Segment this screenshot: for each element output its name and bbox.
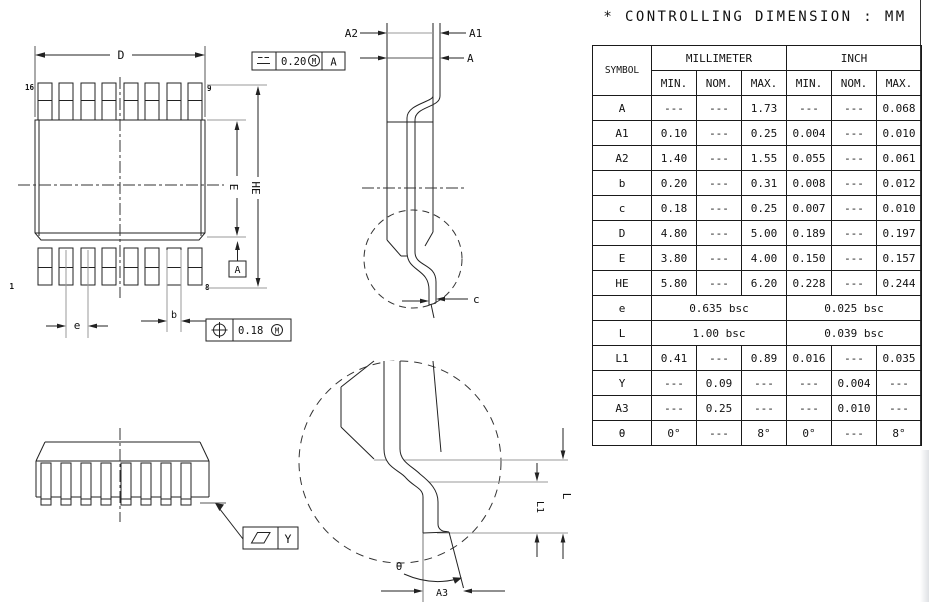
table-row: e0.635 bsc0.025 bsc [593, 296, 922, 321]
col-header: NOM. [832, 71, 877, 96]
table-cell: --- [877, 371, 922, 396]
top-view: D [9, 46, 345, 341]
table-cell: A1 [593, 121, 652, 146]
col-header: MIN. [787, 71, 832, 96]
table-cell: 0.016 [787, 346, 832, 371]
col-header: NOM. [697, 71, 742, 96]
table-cell: 1.00 bsc [652, 321, 787, 346]
table-row: HE5.80---6.200.228---0.244 [593, 271, 922, 296]
table-cell: 0.10 [652, 121, 697, 146]
controlling-dimension-note: * CONTROLLING DIMENSION : MM [589, 9, 921, 25]
dim-label-a1: A1 [469, 27, 482, 40]
fcf-datum-ref: A [330, 57, 337, 69]
dimension-table-body: A------1.73------0.068A10.10---0.250.004… [593, 96, 922, 446]
table-cell: A [593, 96, 652, 121]
table-cell: --- [697, 271, 742, 296]
table-cell: 0.228 [787, 271, 832, 296]
table-cell: --- [832, 146, 877, 171]
table-cell: 0.25 [697, 396, 742, 421]
table-cell: --- [652, 96, 697, 121]
fcf-modifier: M [312, 57, 317, 66]
table-cell: 0.197 [877, 221, 922, 246]
table-cell: --- [742, 371, 787, 396]
table-cell: --- [832, 421, 877, 446]
table-row: A3---0.25------0.010--- [593, 396, 922, 421]
table-cell: --- [697, 421, 742, 446]
page-edge-shadow [920, 450, 929, 602]
dim-label-theta: θ [396, 560, 403, 573]
table-cell: 0.20 [652, 171, 697, 196]
table-row: Y---0.09------0.004--- [593, 371, 922, 396]
dim-label-a: A [467, 52, 474, 65]
table-cell: 0.007 [787, 196, 832, 221]
table-cell: --- [697, 246, 742, 271]
table-cell: --- [832, 96, 877, 121]
table-cell: 5.80 [652, 271, 697, 296]
table-cell: --- [787, 371, 832, 396]
table-cell: 0.010 [877, 196, 922, 221]
pin-number-1: 1 [9, 282, 14, 291]
table-row: L1.00 bsc0.039 bsc [593, 321, 922, 346]
table-cell: 0.189 [787, 221, 832, 246]
detail-callout-circle [364, 210, 462, 308]
dim-label-pitch: e [74, 319, 81, 332]
table-cell: HE [593, 271, 652, 296]
millimeter-header: MILLIMETER [652, 46, 787, 71]
col-header: MIN. [652, 71, 697, 96]
dim-label-b: b [171, 310, 177, 321]
table-cell: L [593, 321, 652, 346]
table-row: A------1.73------0.068 [593, 96, 922, 121]
table-cell: --- [742, 396, 787, 421]
table-cell: 0.025 bsc [787, 296, 922, 321]
col-header: MAX. [877, 71, 922, 96]
table-row: D4.80---5.000.189---0.197 [593, 221, 922, 246]
table-cell: 6.20 [742, 271, 787, 296]
table-cell: 1.73 [742, 96, 787, 121]
dim-label-d: D [118, 48, 125, 62]
table-row: b0.20---0.310.008---0.012 [593, 171, 922, 196]
table-cell: --- [832, 246, 877, 271]
table-cell: --- [697, 121, 742, 146]
detail-view: L L1 θ A3 [299, 361, 573, 602]
dim-label-e-body: E [227, 184, 240, 191]
table-row: θ0°---8°0°---8° [593, 421, 922, 446]
table-cell: --- [697, 221, 742, 246]
table-cell: A3 [593, 396, 652, 421]
table-cell: --- [832, 346, 877, 371]
dimension-table: SYMBOL MILLIMETER INCH MIN. NOM. MAX. MI… [592, 45, 922, 446]
table-cell: --- [787, 396, 832, 421]
table-cell: 0.039 bsc [787, 321, 922, 346]
table-cell: --- [832, 121, 877, 146]
table-cell: 0.89 [742, 346, 787, 371]
package-drawing-page: D [0, 0, 929, 602]
table-cell: 4.00 [742, 246, 787, 271]
table-cell: 0.41 [652, 346, 697, 371]
table-cell: 3.80 [652, 246, 697, 271]
table-cell: 0.18 [652, 196, 697, 221]
dim-label-a2: A2 [345, 27, 358, 40]
front-view: Y [36, 428, 298, 549]
fcf-tolerance: 0.20 [281, 56, 306, 68]
table-cell: 0.010 [877, 121, 922, 146]
fcf-position-modifier: M [275, 327, 280, 336]
table-cell: 8° [742, 421, 787, 446]
dim-label-l: L [560, 493, 573, 500]
table-cell: 5.00 [742, 221, 787, 246]
table-cell: 0.157 [877, 246, 922, 271]
seating-plane-icon [257, 58, 270, 64]
side-view: c A2 A1 A [345, 23, 483, 318]
table-cell: L1 [593, 346, 652, 371]
table-cell: c [593, 196, 652, 221]
fcf-position: 0.18 M [206, 319, 291, 341]
table-cell: 4.80 [652, 221, 697, 246]
table-cell: 0.010 [832, 396, 877, 421]
front-leads [41, 463, 191, 505]
flatness-icon [252, 533, 271, 544]
table-cell: θ [593, 421, 652, 446]
table-header-row: SYMBOL MILLIMETER INCH [593, 46, 922, 71]
table-cell: --- [652, 396, 697, 421]
fcf-flatness-ref: Y [285, 532, 292, 546]
table-cell: 0.061 [877, 146, 922, 171]
table-row: c0.18---0.250.007---0.010 [593, 196, 922, 221]
fcf-position-tolerance: 0.18 [238, 325, 263, 337]
table-cell: 0.068 [877, 96, 922, 121]
table-row: L10.41---0.890.016---0.035 [593, 346, 922, 371]
table-cell: --- [832, 171, 877, 196]
col-header: MAX. [742, 71, 787, 96]
table-cell: 0.004 [787, 121, 832, 146]
table-cell: E [593, 246, 652, 271]
table-cell: --- [697, 96, 742, 121]
fcf-profile: 0.20 M A [252, 52, 345, 70]
table-cell: 1.40 [652, 146, 697, 171]
table-cell: 0.004 [832, 371, 877, 396]
dim-label-l1: L1 [534, 501, 545, 513]
table-row: A21.40---1.550.055---0.061 [593, 146, 922, 171]
table-cell: 0° [787, 421, 832, 446]
table-cell: --- [832, 196, 877, 221]
table-cell: 0.150 [787, 246, 832, 271]
table-cell: 0.035 [877, 346, 922, 371]
pin-number-16: 16 [25, 83, 35, 92]
dim-label-a3: A3 [436, 588, 448, 599]
table-cell: --- [697, 346, 742, 371]
inch-header: INCH [787, 46, 922, 71]
symbol-header: SYMBOL [593, 46, 652, 96]
table-cell: --- [652, 371, 697, 396]
table-cell: 8° [877, 421, 922, 446]
table-cell: 0.055 [787, 146, 832, 171]
table-cell: 0.31 [742, 171, 787, 196]
dim-label-c: c [473, 293, 480, 306]
table-cell: --- [697, 171, 742, 196]
table-cell: 0.008 [787, 171, 832, 196]
table-row: A10.10---0.250.004---0.010 [593, 121, 922, 146]
table-cell: Y [593, 371, 652, 396]
table-cell: A2 [593, 146, 652, 171]
table-cell: 0.012 [877, 171, 922, 196]
table-cell: --- [832, 271, 877, 296]
table-cell: --- [697, 196, 742, 221]
table-cell: --- [877, 396, 922, 421]
table-cell: e [593, 296, 652, 321]
table-cell: 0.635 bsc [652, 296, 787, 321]
table-cell: b [593, 171, 652, 196]
table-cell: --- [832, 221, 877, 246]
table-cell: 0.25 [742, 121, 787, 146]
table-cell: --- [697, 146, 742, 171]
table-cell: 1.55 [742, 146, 787, 171]
table-cell: 0.09 [697, 371, 742, 396]
table-cell: --- [787, 96, 832, 121]
fcf-flatness: Y [243, 527, 298, 549]
table-row: E3.80---4.000.150---0.157 [593, 246, 922, 271]
table-cell: 0° [652, 421, 697, 446]
table-cell: 0.25 [742, 196, 787, 221]
table-cell: D [593, 221, 652, 246]
dim-label-he: HE [249, 181, 262, 194]
datum-a-label: A [234, 265, 240, 276]
table-cell: 0.244 [877, 271, 922, 296]
